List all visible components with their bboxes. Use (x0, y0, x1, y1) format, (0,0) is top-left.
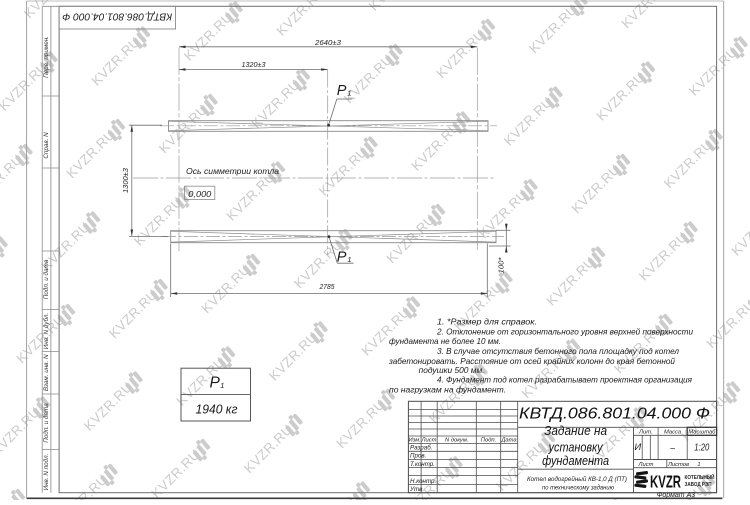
svg-text:Лист: Лист (421, 438, 437, 444)
svg-text:фундамента: фундамента (542, 454, 609, 468)
svg-text:2785: 2785 (319, 282, 336, 291)
svg-text:Масштаб: Масштаб (688, 429, 716, 435)
svg-text:1: 1 (697, 462, 700, 468)
svg-text:Лист: Лист (638, 462, 654, 468)
svg-text:Листов: Листов (667, 462, 689, 468)
svg-text:Пров.: Пров. (410, 453, 426, 460)
svg-text:N докум.: N докум. (445, 438, 468, 444)
svg-text:по нагрузкам на фундамент.: по нагрузкам на фундамент. (389, 386, 506, 395)
svg-text:Подп.: Подп. (481, 438, 496, 444)
svg-text:2. Отклонение от горизонтальн: 2. Отклонение от горизонтального уровня … (436, 328, 693, 337)
svg-text:Формат А3: Формат А3 (657, 492, 695, 499)
svg-text:1. *Размер для справок.: 1. *Размер для справок. (437, 317, 537, 326)
svg-text:Подп. и дата: Подп. и дата (42, 403, 50, 443)
svg-text:1: 1 (347, 255, 351, 264)
svg-text:Перв. примен.: Перв. примен. (43, 36, 50, 78)
svg-text:И: И (634, 442, 641, 453)
svg-text:1320±3: 1320±3 (242, 60, 267, 69)
svg-text:Справ. N: Справ. N (43, 132, 50, 159)
svg-text:Задание на: Задание на (544, 424, 607, 438)
svg-text:фундамента не более 10 мм.: фундамента не более 10 мм. (389, 337, 501, 346)
svg-text:0,000: 0,000 (188, 189, 211, 199)
svg-text:по техническому заданию: по техническому заданию (542, 483, 614, 491)
svg-text:–: – (669, 443, 675, 453)
svg-text:Лит.: Лит. (638, 429, 653, 435)
svg-text:3. В случае отсутствия бетонн: 3. В случае отсутствия бетонного пола пл… (437, 347, 679, 356)
svg-text:КВТД.086.801.04.000 Ф: КВТД.086.801.04.000 Ф (62, 11, 172, 23)
svg-text:1300±3: 1300±3 (121, 167, 130, 193)
svg-text:Инв. N дубл.: Инв. N дубл. (42, 313, 50, 349)
svg-text:подушки 500 мм.: подушки 500 мм. (419, 366, 485, 375)
svg-text:P: P (337, 83, 347, 99)
svg-text:Т.контр.: Т.контр. (410, 461, 435, 468)
svg-text:1940 кг: 1940 кг (196, 403, 238, 417)
svg-text:Н.контр.: Н.контр. (410, 478, 436, 485)
svg-text:Котел водогрейный КВ-1,0 Д (ПТ: Котел водогрейный КВ-1,0 Д (ПТ) (527, 475, 627, 483)
svg-text:Изм.: Изм. (409, 438, 421, 444)
svg-text:КОТЕЛЬНЫЙ: КОТЕЛЬНЫЙ (685, 473, 715, 481)
svg-text:Масса: Масса (664, 429, 682, 435)
svg-text:1: 1 (347, 88, 351, 97)
svg-text:Разраб.: Разраб. (410, 445, 432, 452)
svg-text:1: 1 (220, 381, 224, 390)
svg-text:1:20: 1:20 (694, 442, 709, 453)
svg-text:Дата: Дата (500, 438, 517, 444)
svg-text:KVZR: KVZR (650, 472, 681, 492)
svg-text:установку: установку (548, 441, 604, 455)
svg-text:Инв. N подл.: Инв. N подл. (42, 454, 50, 491)
svg-text:100*: 100* (497, 256, 506, 273)
svg-text:P: P (210, 374, 221, 391)
svg-text:2640±3: 2640±3 (314, 38, 342, 47)
svg-text:Подп. и дата: Подп. и дата (42, 259, 50, 299)
svg-text:забетонировать. Расстояние от: забетонировать. Расстояние от осей крайн… (388, 357, 675, 366)
svg-text:4. Фундамент под котел разраб: 4. Фундамент под котел разрабатывает про… (437, 376, 693, 385)
svg-text:КВТД.086.801.04.000 Ф: КВТД.086.801.04.000 Ф (519, 406, 710, 423)
svg-text:ЗАВОД РЭП: ЗАВОД РЭП (685, 482, 712, 488)
svg-text:Взам. инв. N: Взам. инв. N (43, 354, 50, 391)
svg-text:Ось симметрии котла: Ось симметрии котла (186, 166, 279, 176)
svg-text:Утв.: Утв. (409, 486, 424, 493)
